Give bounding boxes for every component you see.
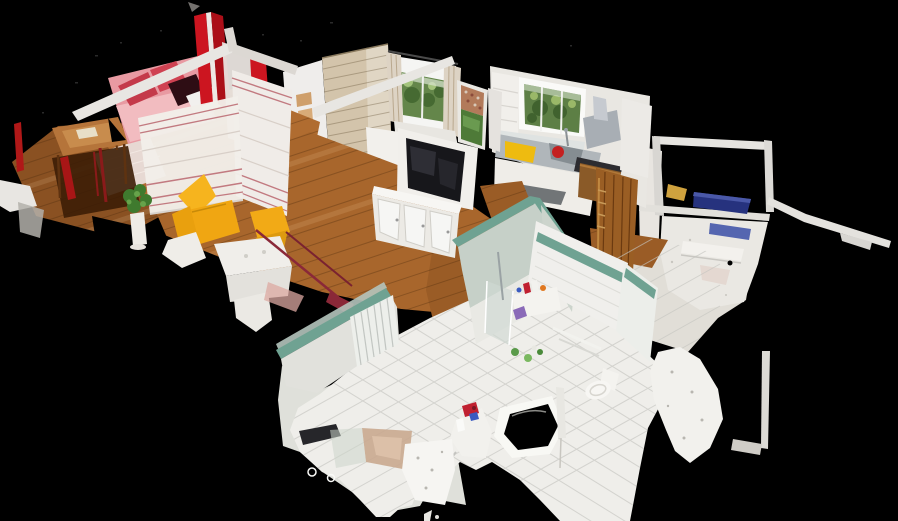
vase-saucer [130, 244, 146, 250]
door-knob [447, 231, 450, 234]
tub-green-tint [330, 428, 366, 468]
door-knob [396, 219, 399, 222]
kitchen-right-wall [620, 98, 652, 178]
dollhouse-view [0, 0, 898, 521]
window-mullion [541, 87, 542, 131]
pole-shadow [560, 438, 561, 468]
floor-dot [728, 261, 733, 266]
hood-chimney [593, 96, 608, 121]
dollhouse-canvas[interactable] [0, 0, 898, 521]
kettle [552, 146, 564, 158]
drip-dot [435, 515, 439, 519]
door-knob [422, 225, 425, 228]
wall-right-of-door [488, 88, 502, 152]
plant-vase [130, 212, 147, 246]
faucet-head [564, 128, 568, 132]
window-mullion [422, 74, 423, 120]
window-mullion [561, 91, 562, 134]
